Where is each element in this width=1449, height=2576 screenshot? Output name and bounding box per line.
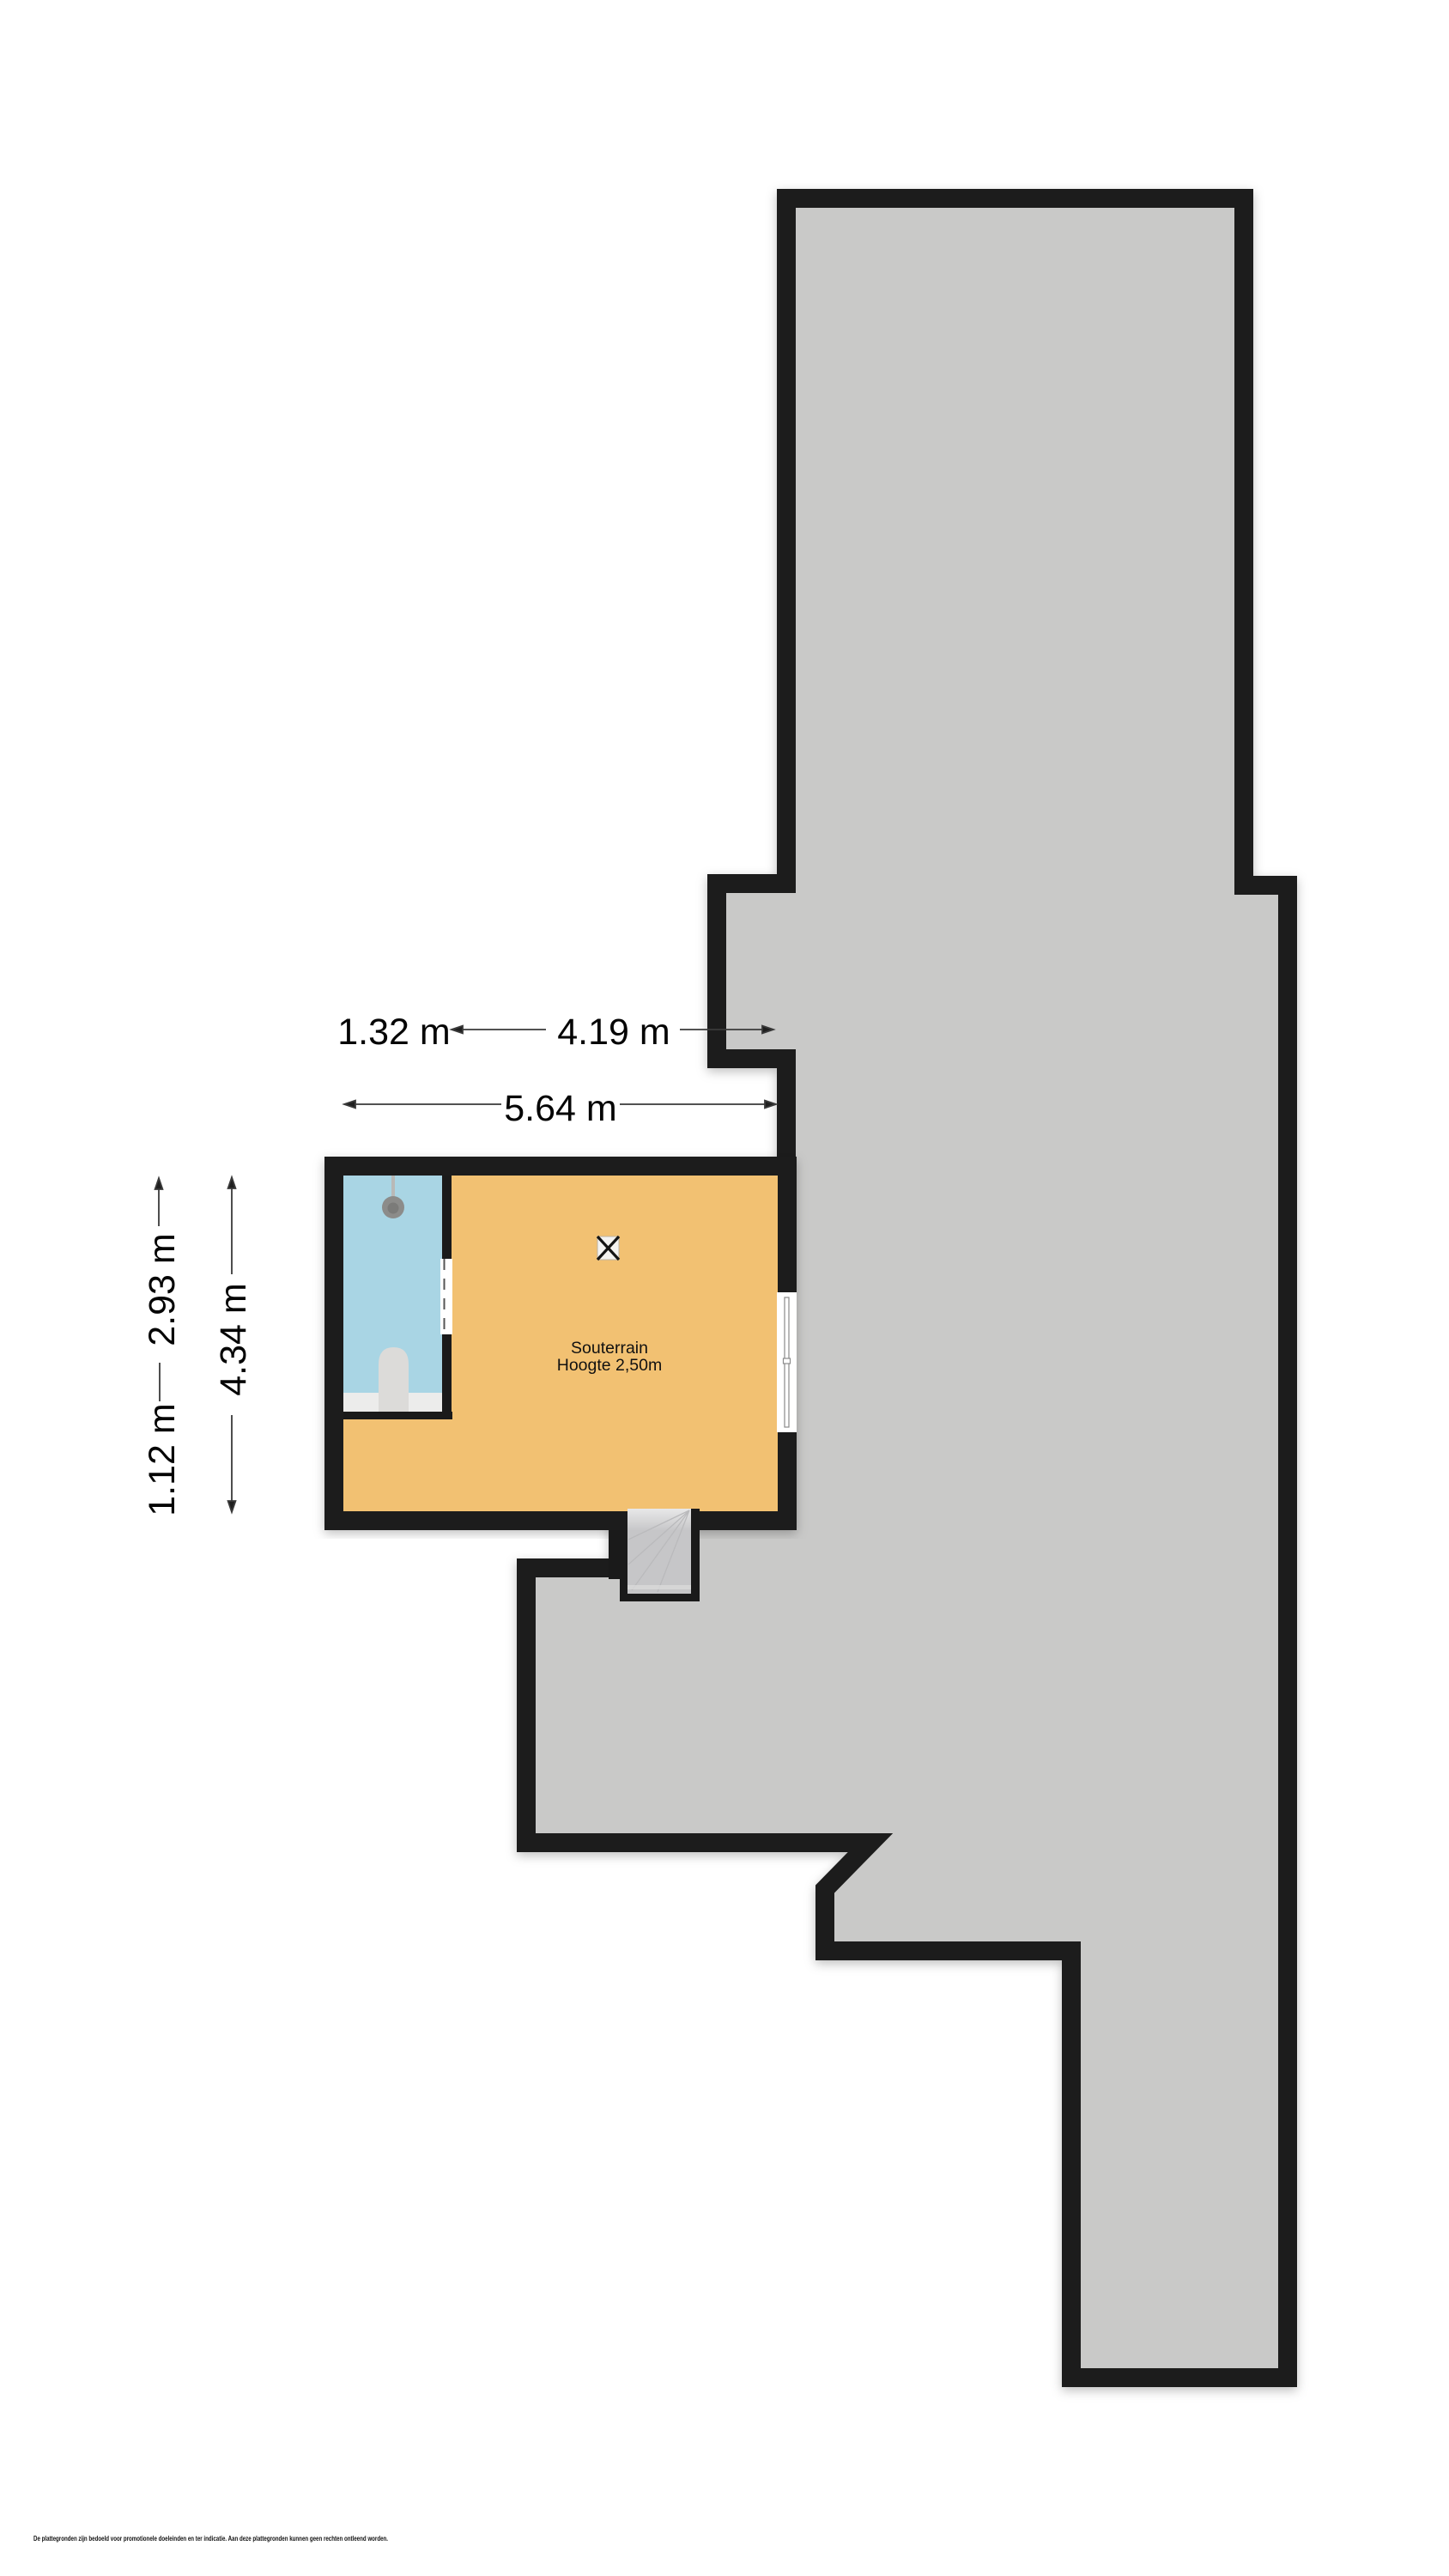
svg-text:Souterrain: Souterrain <box>571 1339 648 1358</box>
svg-text:4.19 m: 4.19 m <box>557 1012 670 1053</box>
svg-text:De plattegronden zijn bedoeld: De plattegronden zijn bedoeld voor promo… <box>33 2535 388 2543</box>
svg-text:5.64 m: 5.64 m <box>504 1088 616 1129</box>
svg-text:1.32 m: 1.32 m <box>337 1012 450 1053</box>
svg-text:2.93 m: 2.93 m <box>142 1233 183 1346</box>
svg-text:4.34 m: 4.34 m <box>213 1283 254 1395</box>
svg-text:Hoogte 2,50m: Hoogte 2,50m <box>557 1356 663 1375</box>
svg-text:1.12 m: 1.12 m <box>142 1403 183 1516</box>
